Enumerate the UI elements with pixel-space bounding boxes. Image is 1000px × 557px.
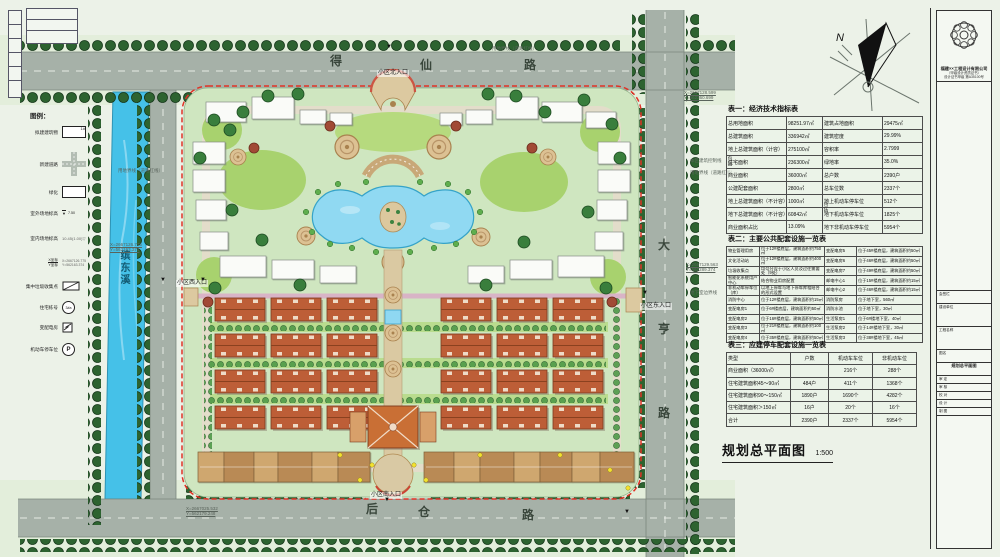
table-cell: 文化活动站 [727,256,760,266]
table-row: 智能化系统用户中心结合物业用房配置邮电中心1位于15#楼底层，建筑面积约15㎡ [727,276,923,286]
table-cell: 合计 [727,414,791,426]
drawing-title-text: 规划总平面图 [722,443,806,458]
table-cell: 以地上停车与地下停车库相结合的形式设置 [760,286,825,296]
table-row: 垃圾收集点均匀分设于小区人员及过往需要处（9处）变配电房7位于49#楼底层，建筑… [727,266,923,276]
table-cell: 地下机动车停车位 [823,208,883,221]
marker-triangle: ▼ [384,497,390,503]
marker-triangle: ▼ [624,509,630,515]
unit-number-symbol: 3#a [62,301,75,314]
table-cell: 1690个 [829,389,873,401]
legend-item-road: 新建道路 [22,152,86,176]
company-cert: 设计证书甲级 第A35100号 [937,75,991,82]
table-cell: 位于46#楼底层，建筑面积约50㎡ [857,256,923,266]
table-cell: 位于12#楼底层，建筑面积约15㎡ [760,296,825,305]
table-cell: 变配电房6 [825,256,857,266]
tb-row-drafter: 制 图 [937,407,991,415]
coord-y: Y=562360.699 [684,95,713,100]
table-cell: 36000㎡ [787,169,823,182]
table-cell: 邮电中心1 [825,276,857,286]
legend-label: 绿化 [22,190,58,195]
table-row: 变配电房3位于21#楼底层，建筑面积约100㎡生活泵房2位于14#楼地下室，30… [727,324,923,334]
public-facilities-table: 物业管理用房位于12#楼底层，建筑面积约750㎡变配电房5位于45#楼底层，建筑… [726,246,923,343]
table-cell: 13.09% [787,221,823,234]
tb-row-signoff: 会签栏 [937,290,991,303]
tb-row-sheetname: 图名 [937,349,991,362]
table-cell: 容积率 [823,143,883,156]
tb-row-designer: 设 计 [937,399,991,407]
table-cell: 住宅建筑面积90～150㎡ [727,389,791,401]
table-row: 变配电房2位于16#楼底层，建筑面积约50㎡生活泵房1位于6#楼地下室，40㎡ [727,314,923,323]
table-cell: 位于12#楼底层，建筑面积约400㎡ [760,256,825,266]
table-cell: 消防泵房 [825,296,857,305]
tb-row-checker: 审 核 [937,383,991,391]
coord-west: X=2667126.775 Y=562163.374 [110,242,142,252]
table-cell: 物业管理用房 [727,247,760,257]
table-cell: 位于6#楼地下室，40㎡ [857,314,923,323]
table-cell: 生活泵房1 [825,314,857,323]
table-cell: 位于地下室，30㎡ [857,305,923,314]
tb-bottom-blank [937,415,991,538]
table-cell: 位于15#楼底层，建筑面积约15㎡ [857,276,923,286]
table-cell: 绿地率 [823,156,883,169]
road-name-south-3: 路 [522,506,534,523]
table-cell: 1368个 [873,377,917,389]
table-row: 商业面积（36000㎡）216个288个 [727,365,917,377]
table-cell: 地下非机动车停车位 [823,221,883,234]
table-cell: 智能化系统用户中心 [727,276,760,286]
table-cell: 地上机动车停车位 [823,195,883,208]
table-cell: 29475㎡ [883,117,923,130]
building-symbol: 1# [62,126,86,138]
table-row: 总建筑面积336942㎡建筑密度29.99% [727,130,923,143]
company-logo [937,11,991,59]
y-coord-label: Y坐标 [48,263,58,267]
legend-item-trash: 集中垃圾收集点 [22,281,80,291]
table3-title: 表三：应建停车配套设施一览表 [728,340,826,350]
legend-item-coords: X坐标 Y坐标 X=2667126.775 Y=562163.374 [22,258,86,267]
annotation-red-line-w: 用地界线（道路红线） [118,168,163,173]
legend-item-elev-in: 室内场地标高 10.45(1.00) ▽ [22,236,86,241]
table-cell: 60842㎡ [787,208,823,221]
coord-sample-y: Y=562163.374 [62,263,84,267]
elevation-symbol: ▼ [62,210,66,216]
table-row: 住宅建筑面积90～150㎡1890户1690个4282个 [727,389,917,401]
table-cell: 35.0% [883,156,923,169]
table-cell: 非机动车位 [873,353,917,365]
table-cell: 商业面积（36000㎡） [727,365,791,377]
table-row: 变配电房1位于6#楼底层，建筑面积约50㎡消防水池位于地下室，30㎡ [727,305,923,314]
table-cell: 均匀分设于小区人员及过往需要处（9处） [760,266,825,276]
elevation-value: 7.50 [68,211,75,215]
tb-row-approver: 审 定 [937,375,991,383]
legend-label: 室外场地标高 [22,211,58,216]
annotation-control-line: 本区建筑控制线 [690,158,722,163]
table-cell: 公建配套面积 [727,182,787,195]
table-cell: 288个 [873,365,917,377]
title-block-blank [937,82,991,290]
table-row: 物业管理用房位于12#楼底层，建筑面积约750㎡变配电房5位于45#楼底层，建筑… [727,247,923,257]
legend-item-parking: 机动车停车位 P [22,343,75,356]
trash-symbol [62,281,80,291]
road-name-east-2: 亨 [658,320,670,337]
table-cell: 位于地下室，560㎡ [857,296,923,305]
table-cell: 236300㎡ [787,156,823,169]
road-name-north-1: 得 [330,52,342,69]
legend-label: 集中垃圾收集点 [22,284,58,289]
tb-drawing-name: 规划总平面图 [937,362,991,375]
title-block-frame: 福建××工程设计有限公司 （甲级设计资质证书） 设计证书甲级 第A35100号 … [936,10,992,549]
road-name-east-1: 大 [658,236,670,253]
table-cell: 275100㎡ [787,143,823,156]
table-cell: 484户 [791,377,829,389]
green-symbol [62,186,86,198]
power-room-symbol [62,322,73,333]
road-name-south-2: 仓 [418,503,430,520]
legend-label: 拟建建筑物 [22,130,58,135]
drawing-scale: 1:500 [815,450,833,457]
table1-bracket-right: 包括 [823,202,829,213]
table-cell: 位于45#楼底层，建筑面积约50㎡ [857,247,923,257]
table-cell: 户数 [791,353,829,365]
table-cell: 5954个 [883,221,923,234]
revision-box [26,8,78,44]
table-row: 商业面积36000㎡总户数2390户 [727,169,923,182]
title-block: 福建××工程设计有限公司 （甲级设计资质证书） 设计证书甲级 第A35100号 … [930,8,993,549]
table-cell: 总用地面积 [727,117,787,130]
north-arrow: N [822,15,927,115]
north-label: N [836,32,844,44]
table-cell: 16户 [791,402,829,414]
legend-title: 图例： [30,110,50,120]
table-cell: 336942㎡ [787,130,823,143]
table-row: 地上总建筑面积（计容）275100㎡容积率2.7999 [727,143,923,156]
table-cell: 2337个 [829,414,873,426]
table-cell: 商业面积 [727,169,787,182]
table-row: 合计2390户2337个5954个 [727,414,917,426]
table-cell: 1890户 [791,389,829,401]
legend-label: 新建道路 [22,162,58,167]
table-cell: 消防中心 [727,296,760,305]
edge-strip [8,10,22,98]
table-cell: 位于14#楼地下室，30㎡ [857,324,923,334]
table-cell: 2.7999 [883,143,923,156]
table-cell: 位于16#楼底层，建筑面积约50㎡ [760,314,825,323]
legend-item-unit-number: 住宅栋号 3#a [22,301,75,314]
legend-item-building: 拟建建筑物 1# [22,126,86,138]
table-cell: 位于21#楼底层，建筑面积约100㎡ [760,324,825,334]
coord-northeast: X=2667128.599 Y=562360.699 [684,90,716,100]
drawing-title: 规划总平面图 1:500 [722,440,833,463]
table-row: 文化活动站位于12#楼底层，建筑面积约400㎡变配电房6位于46#楼底层，建筑面… [727,256,923,266]
legend-item-green: 绿化 [22,186,86,198]
table-cell: 住宅面积 [727,156,787,169]
annotation-red-line: 用地界线（道路红线） [492,46,537,51]
legend-item-power: 变配电房 [22,322,73,333]
road-name-north-2: 仙 [420,56,432,73]
table-cell: 512个 [883,195,923,208]
road-symbol [62,152,86,176]
marker-triangle: ▼ [386,44,392,50]
table-row: 消防中心位于12#楼底层，建筑面积约15㎡消防泵房位于地下室，560㎡ [727,296,923,305]
tb-row-proofer: 校 对 [937,391,991,399]
marker-triangle: ▼ [200,277,206,283]
table-cell: 消防水池 [825,305,857,314]
table-cell: 2800㎡ [787,182,823,195]
parking-requirement-table: 类型户数机动车车位非机动车位商业面积（36000㎡）216个288个住宅建筑面积… [726,352,917,427]
table1-title: 表一：经济技术指标表 [728,104,798,114]
legend-label: 住宅栋号 [22,305,58,310]
table-row: 总用地面积98251.97㎡建筑占地面积29475㎡ [727,117,923,130]
table-cell: 生活泵房2 [825,324,857,334]
site-plan-sheet: N 得 仙 路 大 亨 路 后 仓 路 缤东溪 小区北入口 小区西入口 小区东入… [0,0,1000,557]
legend-label: 变配电房 [22,325,58,330]
table-row: 住宅建筑面积45～90㎡484户411个1368个 [727,377,917,389]
table-cell: 建筑密度 [823,130,883,143]
coord-y: Y=562179.248 [186,511,215,516]
table-cell: 变配电房2 [727,314,760,323]
tb-row-client: 建设单位 [937,303,991,326]
table-cell: 411个 [829,377,873,389]
table-cell: 变配电房1 [727,305,760,314]
table-cell: 位于12#楼底层，建筑面积约750㎡ [760,247,825,257]
table-row: 住宅建筑面积＞150㎡16户20个16个 [727,402,917,414]
table-cell: 20个 [829,402,873,414]
parking-symbol: P [62,343,75,356]
site-plan-drawing [0,0,735,557]
table-row: 住宅面积236300㎡绿地率35.0% [727,156,923,169]
legend-label: 室内场地标高 [22,236,58,241]
coord-y: Y=562163.374 [110,247,139,252]
table-cell: 邮电中心2 [825,286,857,296]
table-cell: 住宅建筑面积45～90㎡ [727,377,791,389]
table-row: 类型户数机动车车位非机动车位 [727,353,917,365]
table-cell: 29.99% [883,130,923,143]
legend-label: 机动车停车位 [22,347,58,352]
table-cell: 地下总建筑面积（不计容） [727,208,787,221]
table-cell: 垃圾收集点 [727,266,760,276]
table-cell: 建筑占地面积 [823,117,883,130]
coord-y: Y=562289.374 [686,267,715,272]
table-row: 商业面积占比13.09%地下非机动车停车位5954个 [727,221,923,234]
table-cell: 216个 [829,365,873,377]
table-cell: 地上总建筑面积（计容） [727,143,787,156]
table-cell: 类型 [727,353,791,365]
legend-item-elev-out: 室外场地标高 ▼ 7.50 [22,210,75,216]
table-row: 公建配套面积2800㎡总车位数2337个 [727,182,923,195]
table-cell: 机动车车位 [829,353,873,365]
table-cell: 位于38#楼地下室，45㎡ [857,334,923,343]
table-cell: 总建筑面积 [727,130,787,143]
table-cell: 位于46#楼底层，建筑面积约15㎡ [857,286,923,296]
table-cell: 变配电房7 [825,266,857,276]
marker-triangle: ▼ [642,290,648,296]
table-cell: 2337个 [883,182,923,195]
road-name-south-1: 后 [366,500,378,517]
entrance-east-label: 小区东入口 [640,303,672,310]
table-cell: 16个 [873,402,917,414]
table-cell: 生活泵房3 [825,334,857,343]
legend-label: X坐标 Y坐标 [22,258,58,267]
table-cell: 2390户 [883,169,923,182]
road-name-north-3: 路 [524,56,536,73]
table-cell: 1825个 [883,208,923,221]
coord-southwest: X=2667025.532 Y=562179.248 [186,506,218,516]
table-cell: 总车位数 [823,182,883,195]
table-cell: 商业面积占比 [727,221,787,234]
table-cell: 住宅建筑面积＞150㎡ [727,402,791,414]
annotation-basement-line: 地下室边界线 [690,290,717,295]
table-cell [791,365,829,377]
table-cell: 总户数 [823,169,883,182]
table-cell: 结合物业用房配置 [760,276,825,286]
table-cell: 变配电房5 [825,247,857,257]
economic-indicators-table: 总用地面积98251.97㎡建筑占地面积29475㎡总建筑面积336942㎡建筑… [726,116,923,234]
elevation-in-value: 10.45(1.00) [62,236,82,241]
coord-east: X=2667129.563 Y=562289.374 [686,262,718,272]
table-cell: 98251.97㎡ [787,117,823,130]
table-cell: 4282个 [873,389,917,401]
stream-name: 缤东溪 [116,250,131,286]
road-name-east-3: 路 [658,404,670,421]
table-cell: 位于49#楼底层，建筑面积约50㎡ [857,266,923,276]
marker-triangle: ▼ [160,277,166,283]
entrance-north-label: 小区北入口 [377,70,409,77]
table-cell: 地上总建筑面积（不计容） [727,195,787,208]
table-cell: 1000㎡ [787,195,823,208]
tb-row-project: 工程名称 [937,326,991,349]
table1-bracket-left: 包括 [727,156,733,167]
elevation-open-symbol: ▽ [82,236,85,241]
table-cell: 5954个 [873,414,917,426]
table-cell: 2390户 [791,414,829,426]
table-cell: 变配电房3 [727,324,760,334]
table-row: 非机动车停车位（库）以地上停车与地下停车库相结合的形式设置邮电中心2位于46#楼… [727,286,923,296]
table-cell: 非机动车停车位（库） [727,286,760,296]
table-cell: 位于6#楼底层，建筑面积约50㎡ [760,305,825,314]
table2-title: 表二：主要公共配套设施一览表 [728,234,826,244]
